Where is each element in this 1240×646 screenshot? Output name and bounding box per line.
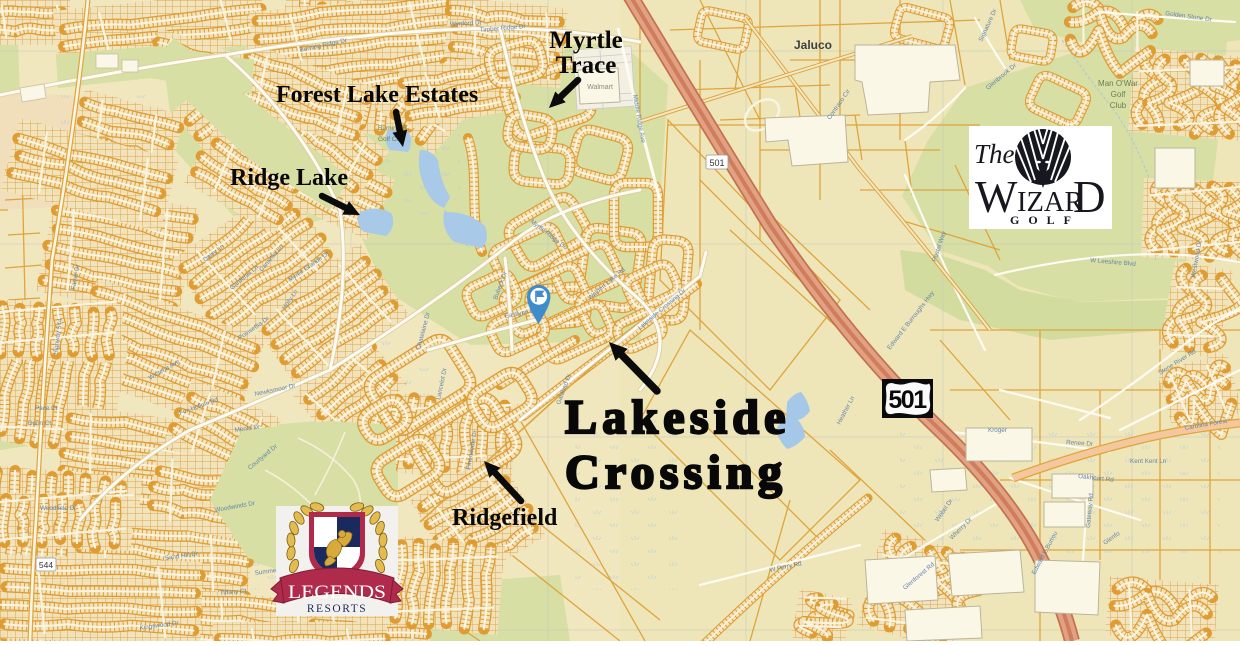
svg-text:Myrtle: Myrtle	[549, 27, 623, 54]
svg-text:Ridge Lake: Ridge Lake	[230, 165, 348, 191]
svg-text:544: 544	[39, 560, 53, 570]
svg-text:Forest Lake Estates: Forest Lake Estates	[276, 82, 478, 108]
svg-text:Kent Kent Ln: Kent Kent Ln	[1130, 458, 1167, 465]
svg-text:GOLF: GOLF	[1010, 213, 1080, 227]
svg-text:Trace: Trace	[556, 52, 617, 79]
svg-text:LEGENDS: LEGENDS	[288, 582, 386, 603]
svg-text:Jaluco: Jaluco	[794, 38, 832, 52]
svg-text:Woodfield Dr: Woodfield Dr	[40, 505, 76, 512]
svg-text:Lakeside: Lakeside	[565, 391, 791, 444]
svg-text:Walmart: Walmart	[587, 84, 613, 91]
svg-text:Club: Club	[1110, 101, 1127, 110]
svg-text:RESORTS: RESORTS	[307, 603, 367, 615]
svg-text:501: 501	[888, 386, 927, 414]
svg-text:Pace Ct: Pace Ct	[35, 405, 58, 412]
svg-text:Crossing: Crossing	[565, 446, 787, 499]
svg-text:Golf: Golf	[1111, 90, 1126, 99]
svg-text:Ridgefield: Ridgefield	[452, 505, 558, 531]
svg-text:Dunn Ct: Dunn Ct	[28, 420, 51, 427]
svg-text:Man O'War: Man O'War	[1098, 79, 1138, 88]
svg-text:501: 501	[709, 158, 724, 168]
svg-text:Kroger: Kroger	[988, 427, 1007, 434]
svg-text:The: The	[974, 139, 1015, 169]
